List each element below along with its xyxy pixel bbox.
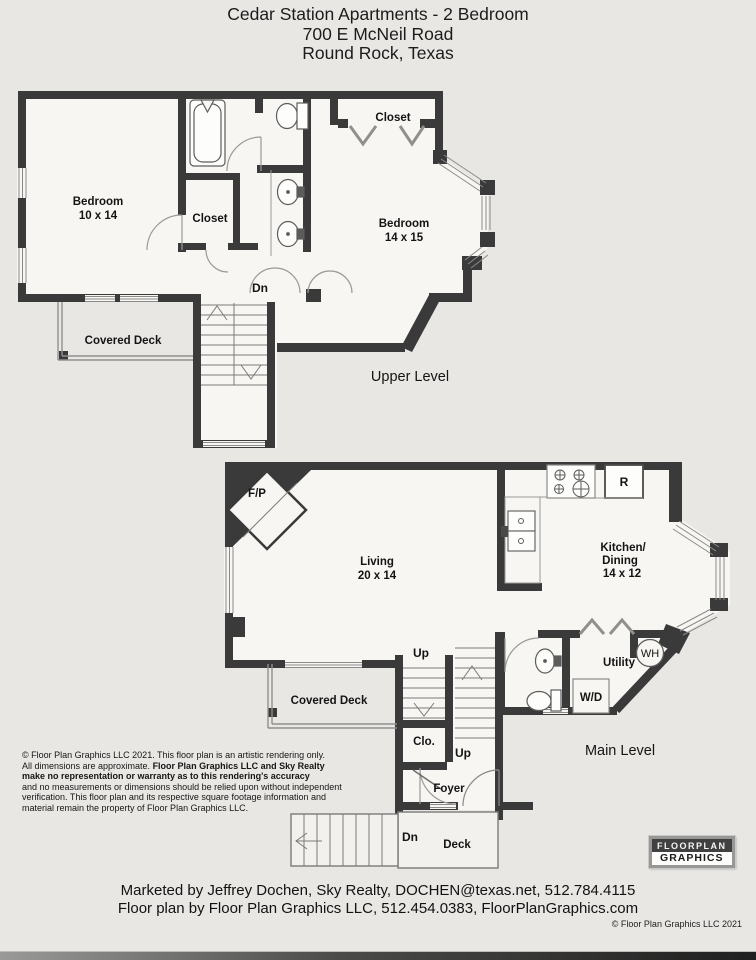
upper-floor bbox=[18, 91, 488, 448]
floor-plan-by-line: Floor plan by Floor Plan Graphics LLC, 5… bbox=[0, 900, 756, 918]
powder-toilet-icon bbox=[527, 690, 561, 711]
main-level-caption: Main Level bbox=[585, 743, 655, 759]
fireplace-label: F/P bbox=[248, 488, 266, 500]
kitchen-label-1: Kitchen/ bbox=[600, 542, 646, 554]
stove-icon bbox=[547, 465, 595, 498]
refrigerator-label: R bbox=[620, 475, 629, 489]
upper-bedroom2-dim: 14 x 15 bbox=[385, 232, 424, 244]
bathtub-icon bbox=[190, 100, 225, 166]
upper-bedroom2-label: Bedroom bbox=[379, 218, 429, 230]
upper-covered-deck-label: Covered Deck bbox=[85, 335, 162, 347]
disclaimer-line: verification. This floor plan and its re… bbox=[22, 792, 352, 803]
upper-bedroom1-label: Bedroom bbox=[73, 196, 123, 208]
upper-bedroom1-dim: 10 x 14 bbox=[79, 210, 118, 222]
window-bedroom1-south bbox=[85, 294, 158, 302]
stairs-up1-label: Up bbox=[413, 646, 429, 660]
kitchen-dim: 14 x 12 bbox=[603, 568, 641, 580]
disclaimer-line: All dimensions are approximate. Floor Pl… bbox=[22, 761, 352, 772]
living-label: Living bbox=[360, 556, 394, 568]
upper-closet-inner-label: Closet bbox=[192, 213, 227, 225]
scanned-floor-plan-page: Cedar Station Apartments - 2 Bedroom 700… bbox=[0, 0, 756, 960]
disclaimer-line: make no representation or warranty as to… bbox=[22, 771, 352, 782]
water-heater-label: WH bbox=[641, 648, 659, 660]
toilet-icon bbox=[277, 103, 309, 129]
window-stair-landing bbox=[203, 441, 265, 447]
kitchen-label-2: Dining bbox=[602, 555, 638, 567]
exterior-stairs-dn-label: Dn bbox=[402, 830, 418, 844]
window-living-south bbox=[285, 661, 362, 668]
deck-label: Deck bbox=[443, 839, 471, 851]
upper-closet-top-label: Closet bbox=[375, 112, 410, 124]
footer-copyright: © Floor Plan Graphics LLC 2021 bbox=[612, 919, 742, 929]
scan-edge-strip bbox=[0, 952, 756, 960]
disclaimer-line: material remain the property of Floor Pl… bbox=[22, 803, 352, 814]
floorplan-graphics-logo: FLOORPLAN GRAPHICS bbox=[649, 836, 735, 868]
logo-bottom-text: GRAPHICS bbox=[652, 852, 732, 865]
logo-top-text: FLOORPLAN bbox=[652, 839, 732, 852]
upper-level-caption: Upper Level bbox=[371, 369, 449, 385]
marketed-by-line: Marketed by Jeffrey Dochen, Sky Realty, … bbox=[0, 882, 756, 900]
disclaimer-line: and no measurements or dimensions should… bbox=[22, 782, 352, 793]
main-covered-deck-label: Covered Deck bbox=[291, 695, 368, 707]
footer-block: Marketed by Jeffrey Dochen, Sky Realty, … bbox=[0, 882, 756, 918]
kitchen-sink-icon bbox=[501, 497, 540, 583]
disclaimer-line: © Floor Plan Graphics LLC 2021. This flo… bbox=[22, 750, 352, 761]
washer-dryer-label: W/D bbox=[580, 692, 602, 704]
exterior-stairs bbox=[291, 814, 398, 866]
floor-plan-canvas: Bedroom 10 x 14 Closet Closet Bedroom 14… bbox=[0, 0, 756, 960]
stairs-up2-label: Up bbox=[455, 746, 471, 760]
disclaimer-block: © Floor Plan Graphics LLC 2021. This flo… bbox=[22, 750, 352, 814]
living-dim: 20 x 14 bbox=[358, 570, 397, 582]
window-left-2 bbox=[17, 248, 27, 283]
window-left-1 bbox=[17, 168, 27, 198]
window-living-west bbox=[224, 547, 234, 613]
utility-label: Utility bbox=[603, 657, 636, 669]
upper-stairs-dn-label: Dn bbox=[252, 281, 268, 295]
foyer-label: Foyer bbox=[433, 783, 465, 795]
closet-label: Clo. bbox=[413, 736, 435, 748]
upper-level-plan: Bedroom 10 x 14 Closet Closet Bedroom 14… bbox=[17, 91, 495, 448]
upper-covered-deck-railing bbox=[58, 302, 193, 360]
